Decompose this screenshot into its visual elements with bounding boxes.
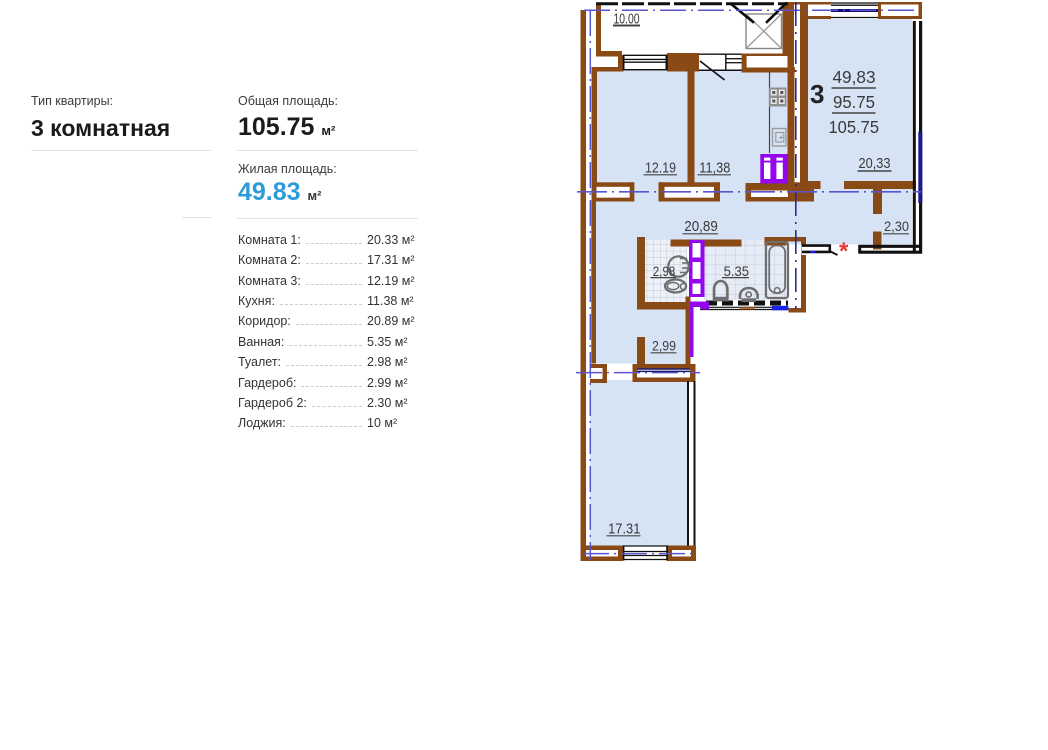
svg-text:2,98: 2,98 (653, 263, 675, 279)
svg-text:2,30: 2,30 (884, 218, 909, 234)
svg-text:11,38: 11,38 (699, 161, 730, 177)
svg-text:2,99: 2,99 (652, 338, 676, 354)
svg-text:95.75: 95.75 (833, 92, 875, 112)
svg-text:17.31: 17.31 (608, 522, 640, 538)
svg-text:49,83: 49,83 (833, 67, 876, 87)
svg-text:3: 3 (810, 79, 824, 109)
svg-text:*: * (839, 238, 849, 265)
svg-text:20,33: 20,33 (859, 156, 891, 172)
svg-text:12.19: 12.19 (645, 161, 676, 177)
svg-text:20,89: 20,89 (684, 218, 718, 235)
svg-text:105.75: 105.75 (829, 117, 880, 137)
svg-text:5.35: 5.35 (724, 263, 750, 279)
